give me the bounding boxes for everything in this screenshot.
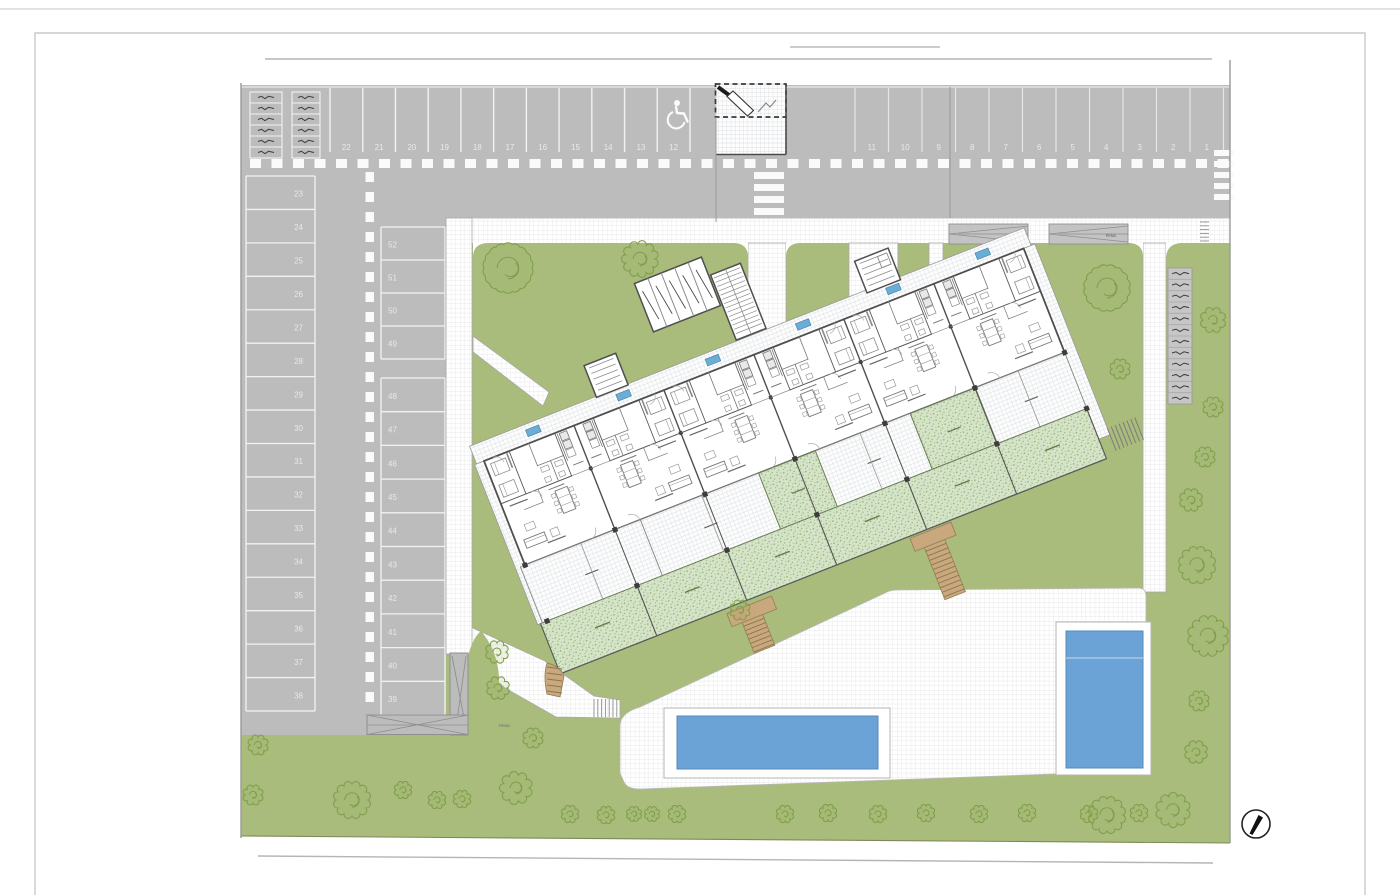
svg-text:27: 27 [294,323,303,332]
svg-text:13: 13 [636,143,645,152]
svg-text:9: 9 [937,143,942,152]
svg-text:19: 19 [440,143,449,152]
svg-text:32: 32 [294,491,303,500]
svg-text:39: 39 [388,695,397,704]
svg-text:31: 31 [294,457,303,466]
svg-text:48: 48 [388,392,397,401]
svg-text:50: 50 [388,306,397,315]
svg-text:52: 52 [388,240,397,249]
svg-text:45: 45 [388,493,397,502]
svg-text:38: 38 [294,691,303,700]
svg-text:30: 30 [294,424,303,433]
svg-text:41: 41 [388,628,397,637]
svg-text:1: 1 [1205,143,1210,152]
svg-text:12: 12 [669,143,678,152]
svg-text:25: 25 [294,257,303,266]
svg-text:11: 11 [868,143,877,152]
svg-text:46: 46 [388,459,397,468]
svg-text:34: 34 [294,558,303,567]
svg-text:51: 51 [388,273,397,282]
svg-text:10: 10 [901,143,910,152]
svg-text:5: 5 [1071,143,1076,152]
svg-text:7: 7 [1004,143,1009,152]
svg-text:33: 33 [294,524,303,533]
svg-text:40: 40 [388,661,397,670]
svg-text:2: 2 [1171,143,1176,152]
svg-text:28: 28 [294,357,303,366]
svg-text:29: 29 [294,390,303,399]
svg-text:23: 23 [294,190,303,199]
svg-text:17: 17 [506,143,515,152]
svg-text:14: 14 [604,143,613,152]
svg-text:44: 44 [388,527,397,536]
svg-text:43: 43 [388,560,397,569]
svg-text:PEND: PEND [1106,234,1117,238]
svg-text:42: 42 [388,594,397,603]
svg-text:22: 22 [342,143,351,152]
svg-text:8: 8 [970,143,975,152]
svg-text:16: 16 [538,143,547,152]
svg-text:6: 6 [1037,143,1042,152]
svg-text:18: 18 [473,143,482,152]
svg-text:49: 49 [388,339,397,348]
svg-text:PEND.: PEND. [499,723,511,728]
svg-text:24: 24 [294,223,303,232]
svg-text:47: 47 [388,426,397,435]
svg-text:21: 21 [375,143,384,152]
svg-text:3: 3 [1138,143,1143,152]
svg-text:15: 15 [571,143,580,152]
svg-text:26: 26 [294,290,303,299]
svg-text:35: 35 [294,591,303,600]
svg-text:36: 36 [294,624,303,633]
svg-text:20: 20 [407,143,416,152]
svg-text:37: 37 [294,658,303,667]
svg-text:4: 4 [1104,143,1109,152]
